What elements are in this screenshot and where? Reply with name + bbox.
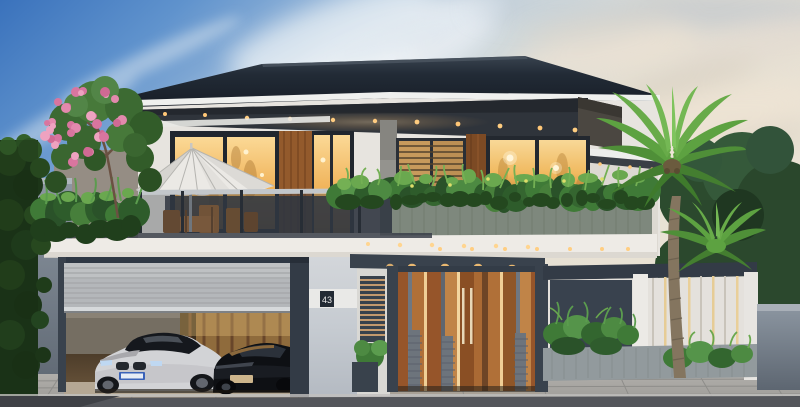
svg-text:43: 43 [322, 295, 332, 305]
